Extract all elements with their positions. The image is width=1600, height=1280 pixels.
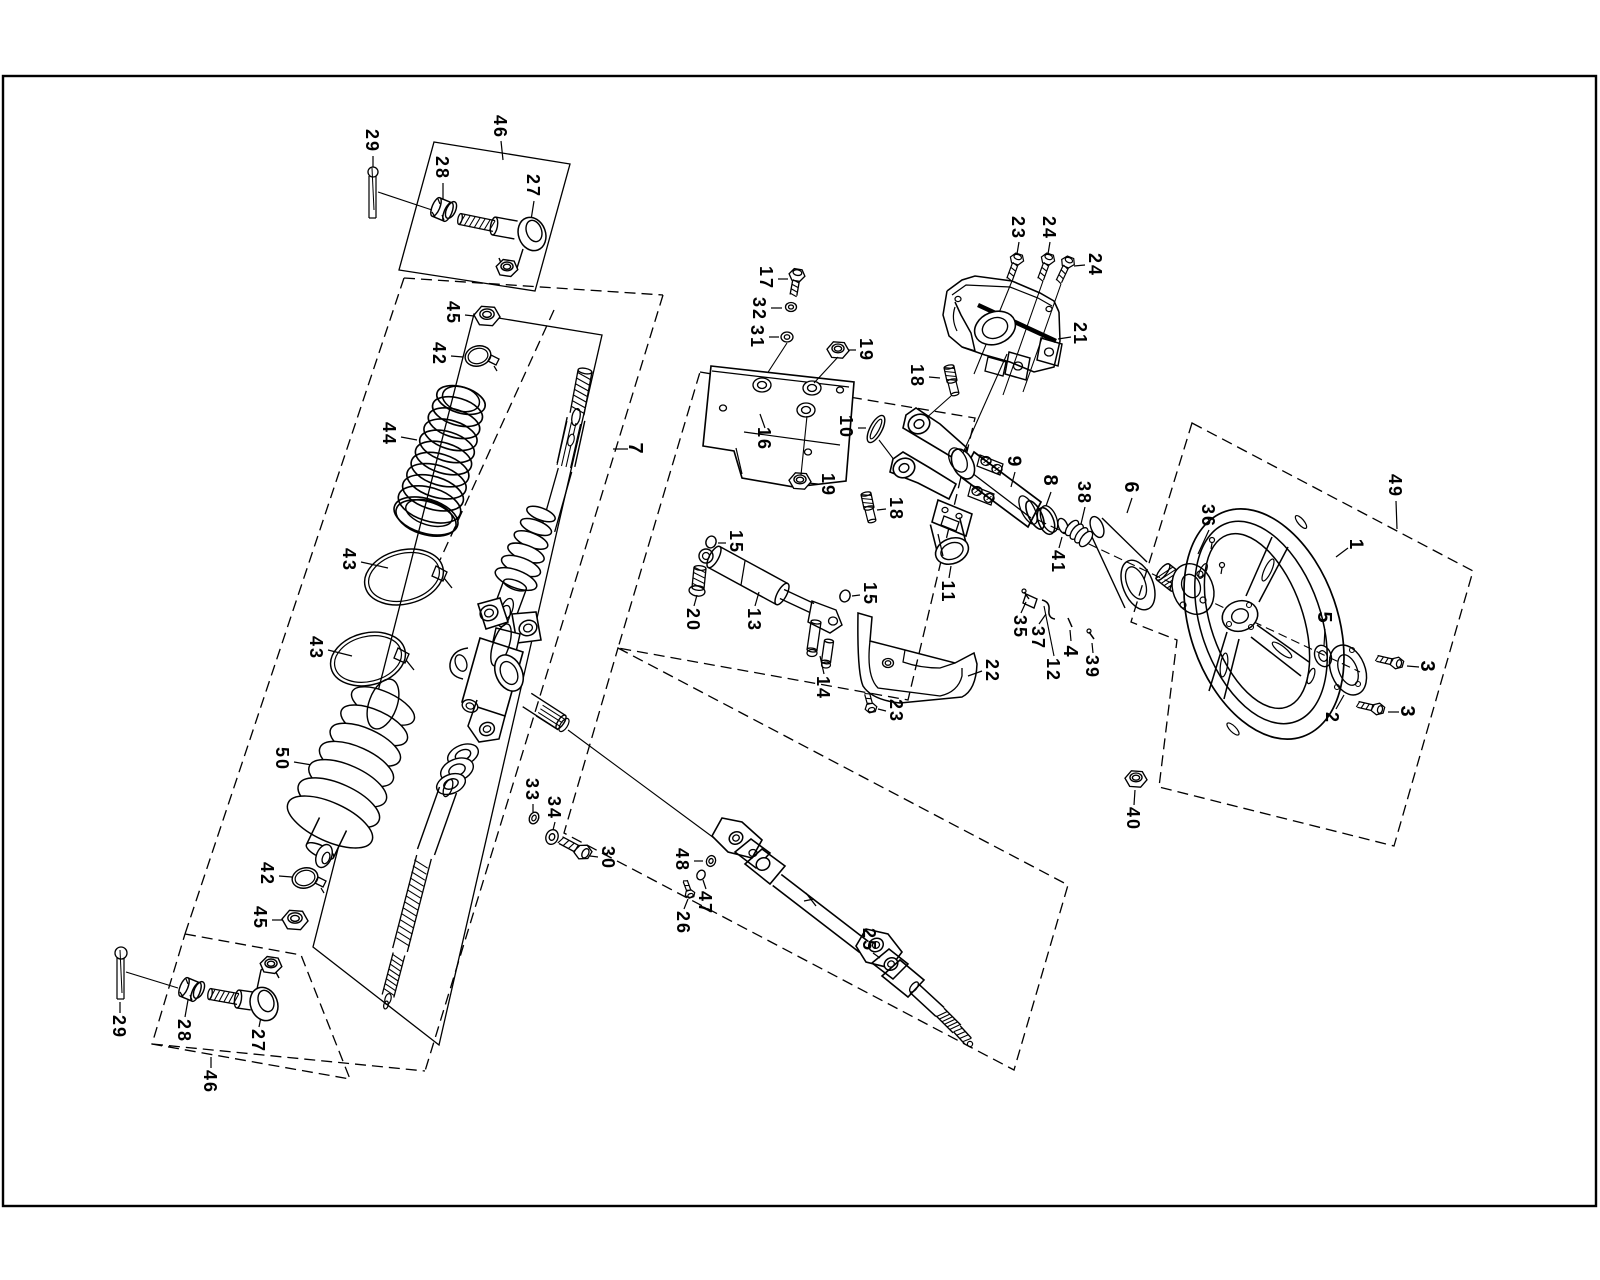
svg-text:47: 47 — [695, 891, 715, 915]
svg-text:48: 48 — [672, 848, 692, 872]
svg-text:46: 46 — [490, 115, 510, 139]
svg-text:3: 3 — [1416, 660, 1438, 673]
svg-text:18: 18 — [886, 497, 906, 521]
svg-text:11: 11 — [938, 580, 958, 603]
svg-text:19: 19 — [818, 473, 838, 497]
svg-text:21: 21 — [1070, 322, 1090, 346]
svg-text:32: 32 — [749, 297, 769, 321]
svg-text:25: 25 — [859, 928, 879, 952]
svg-text:41: 41 — [1048, 550, 1068, 574]
svg-text:46: 46 — [200, 1070, 220, 1094]
svg-text:43: 43 — [306, 636, 326, 660]
svg-text:15: 15 — [726, 530, 746, 554]
svg-text:29: 29 — [109, 1015, 129, 1039]
svg-text:50: 50 — [272, 747, 292, 771]
svg-text:20: 20 — [683, 608, 703, 632]
svg-text:22: 22 — [982, 659, 1002, 683]
svg-text:28: 28 — [432, 156, 452, 180]
svg-text:5: 5 — [1313, 611, 1335, 624]
svg-text:34: 34 — [544, 796, 564, 820]
svg-text:1: 1 — [1345, 539, 1366, 552]
svg-text:35: 35 — [1010, 615, 1030, 639]
svg-text:4: 4 — [1059, 645, 1081, 658]
svg-text:24: 24 — [1085, 253, 1105, 277]
svg-text:49: 49 — [1385, 474, 1405, 498]
svg-text:3: 3 — [1396, 705, 1418, 718]
svg-text:26: 26 — [673, 911, 693, 935]
svg-text:45: 45 — [250, 906, 270, 930]
svg-text:12: 12 — [1043, 658, 1063, 682]
svg-text:38: 38 — [1074, 481, 1094, 505]
svg-text:45: 45 — [443, 301, 463, 325]
svg-text:24: 24 — [1039, 216, 1059, 240]
svg-text:33: 33 — [522, 778, 542, 802]
svg-text:6: 6 — [1120, 481, 1142, 494]
svg-text:19: 19 — [856, 338, 876, 362]
svg-text:2: 2 — [1322, 712, 1342, 724]
svg-text:9: 9 — [1003, 456, 1024, 469]
svg-text:42: 42 — [257, 862, 277, 886]
svg-text:23: 23 — [886, 699, 906, 723]
svg-text:15: 15 — [860, 582, 880, 606]
svg-text:28: 28 — [174, 1019, 194, 1043]
svg-text:30: 30 — [598, 846, 618, 870]
svg-text:8: 8 — [1039, 474, 1061, 487]
svg-text:13: 13 — [744, 608, 764, 632]
svg-text:42: 42 — [429, 342, 449, 366]
svg-text:10: 10 — [836, 415, 856, 439]
svg-text:17: 17 — [756, 266, 776, 290]
svg-text:18: 18 — [907, 364, 927, 388]
svg-text:14: 14 — [813, 676, 833, 700]
svg-text:37: 37 — [1028, 626, 1048, 650]
svg-text:31: 31 — [747, 325, 767, 349]
svg-text:27: 27 — [248, 1029, 268, 1053]
svg-text:23: 23 — [1008, 216, 1028, 240]
svg-text:43: 43 — [339, 548, 359, 572]
svg-text:39: 39 — [1082, 655, 1102, 679]
svg-text:29: 29 — [362, 129, 382, 153]
svg-text:16: 16 — [754, 427, 774, 451]
svg-text:44: 44 — [379, 422, 399, 446]
svg-text:40: 40 — [1123, 807, 1143, 831]
svg-text:27: 27 — [523, 174, 543, 198]
